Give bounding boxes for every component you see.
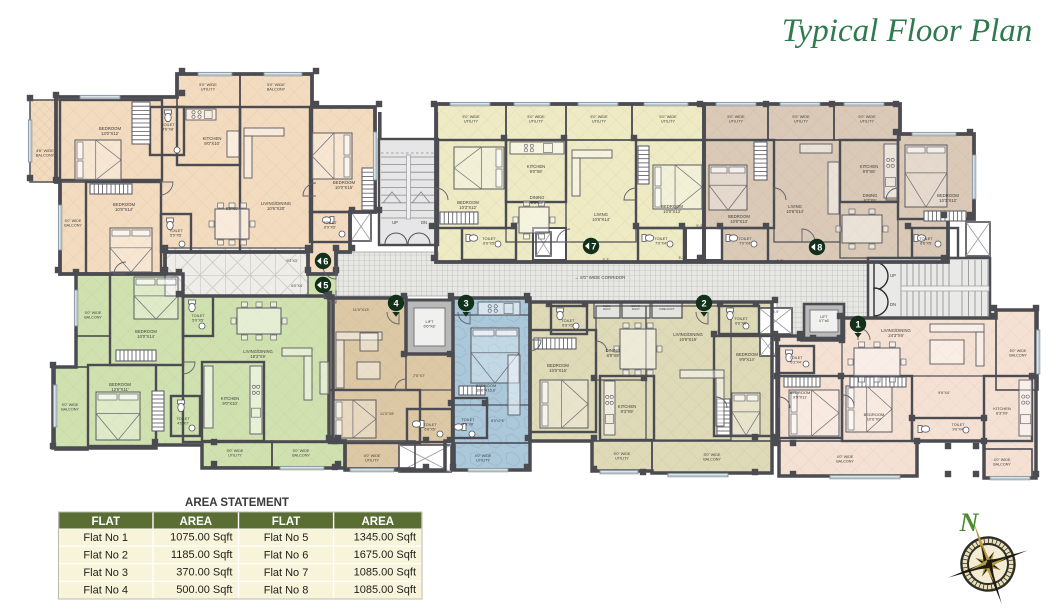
svg-text:Flat No 4: Flat No 4 bbox=[83, 585, 128, 597]
svg-text:BEDROOM10'6"X15.6': BEDROOM10'6"X15.6' bbox=[476, 383, 497, 393]
svg-text:BEDROOM10'0"X15': BEDROOM10'0"X15' bbox=[333, 180, 356, 190]
svg-text:BEDROOM10'0"X13': BEDROOM10'0"X13' bbox=[661, 204, 683, 214]
svg-text:AREA: AREA bbox=[362, 516, 395, 528]
svg-text:5'-3": 5'-3" bbox=[603, 258, 611, 262]
svg-text:BEDROOM12'0"X11': BEDROOM12'0"X11' bbox=[109, 382, 131, 392]
svg-text:TOILET6'3"X4': TOILET6'3"X4' bbox=[790, 356, 804, 364]
svg-text:BEDROOM10'0"X13': BEDROOM10'0"X13' bbox=[728, 214, 750, 224]
svg-text:9'3"X3': 9'3"X3' bbox=[286, 259, 298, 263]
svg-text:DN: DN bbox=[890, 302, 896, 307]
svg-text:1075.00 Sqft: 1075.00 Sqft bbox=[170, 531, 232, 543]
svg-text:BEDROOM10'0"X14': BEDROOM10'0"X14' bbox=[113, 202, 136, 212]
svg-text:Flat No 2: Flat No 2 bbox=[83, 550, 128, 562]
svg-text:UP: UP bbox=[890, 273, 896, 278]
svg-text:Flat No 6: Flat No 6 bbox=[264, 550, 309, 562]
svg-text:5'0" WIDEBALCONY: 5'0" WIDEBALCONY bbox=[703, 453, 721, 461]
svg-text:7: 7 bbox=[591, 241, 596, 251]
svg-text:5'0" WIDEUTILITY: 5'0" WIDEUTILITY bbox=[659, 115, 677, 123]
svg-text:TOILET6'9"X5': TOILET6'9"X5' bbox=[561, 319, 575, 327]
svg-text:Flat No 7: Flat No 7 bbox=[264, 567, 309, 579]
svg-text:TOILET5'5"X5': TOILET5'5"X5' bbox=[169, 228, 183, 237]
svg-text:TOILET6'6"X5': TOILET6'6"X5' bbox=[424, 423, 438, 431]
svg-text:11'9"X13': 11'9"X13' bbox=[353, 307, 370, 312]
svg-text:BEDROOM13'0"X12': BEDROOM13'0"X12' bbox=[99, 126, 122, 136]
svg-text:AREA STATEMENT: AREA STATEMENT bbox=[185, 497, 289, 509]
svg-text:4'0" WIDEUTILITY: 4'0" WIDEUTILITY bbox=[475, 454, 492, 462]
svg-text:500.00 Sqft: 500.00 Sqft bbox=[176, 584, 232, 596]
svg-text:COMM.DUCT: COMM.DUCT bbox=[631, 304, 641, 311]
svg-text:ELEC.DUCT: ELEC.DUCT bbox=[603, 304, 611, 311]
svg-text:TOILET4'6"X8': TOILET4'6"X8' bbox=[462, 418, 476, 426]
svg-text:5'0" WIDEUTILITY: 5'0" WIDEUTILITY bbox=[462, 115, 480, 123]
svg-text:TOILET6'6"X5': TOILET6'6"X5' bbox=[482, 237, 496, 245]
svg-text:KITCHEN9'0"X10': KITCHEN9'0"X10' bbox=[221, 396, 239, 406]
svg-text:1: 1 bbox=[855, 319, 860, 329]
svg-text:← 6'0" WIDE CORRIDOR: ← 6'0" WIDE CORRIDOR bbox=[575, 275, 626, 280]
svg-text:1185.00 Sqft: 1185.00 Sqft bbox=[171, 549, 233, 561]
svg-text:4: 4 bbox=[393, 298, 399, 308]
svg-text:BEDROOM10'6"X9': BEDROOM10'6"X9' bbox=[864, 412, 885, 422]
svg-text:6'0"x7'6": 6'0"x7'6" bbox=[491, 419, 505, 423]
svg-text:Flat No 1: Flat No 1 bbox=[83, 532, 128, 544]
svg-text:5'0" WIDEUTILITY: 5'0" WIDEUTILITY bbox=[858, 115, 876, 123]
svg-text:4'0" WIDEBALCONY: 4'0" WIDEBALCONY bbox=[836, 455, 854, 463]
svg-text:DINING8'9"X9': DINING8'9"X9' bbox=[606, 348, 621, 358]
svg-text:8'0"X9': 8'0"X9' bbox=[226, 206, 239, 211]
svg-text:UP: UP bbox=[392, 220, 398, 225]
svg-text:2: 2 bbox=[701, 298, 706, 308]
svg-text:LIVING10'6"X14': LIVING10'6"X14' bbox=[592, 212, 610, 222]
svg-text:5'0" WIDEUTILITY: 5'0" WIDEUTILITY bbox=[614, 452, 631, 460]
svg-text:TOILET7'0"X4': TOILET7'0"X4' bbox=[654, 237, 668, 245]
svg-text:TOILET6'6"X6': TOILET6'6"X6' bbox=[734, 317, 748, 325]
svg-text:TOILET5'0"X5': TOILET5'0"X5' bbox=[191, 314, 205, 322]
svg-text:KITCHEN9'0"X8': KITCHEN9'0"X8' bbox=[527, 164, 545, 174]
svg-text:5'0" WIDEBALCONY: 5'0" WIDEBALCONY bbox=[292, 449, 310, 457]
svg-text:Typical Floor Plan: Typical Floor Plan bbox=[782, 13, 1033, 49]
svg-text:KITCHEN8'3"X9': KITCHEN8'3"X9' bbox=[618, 404, 636, 414]
svg-text:DN: DN bbox=[421, 220, 427, 225]
svg-text:N: N bbox=[959, 508, 980, 537]
svg-text:KITCHEN9'0"X8': KITCHEN9'0"X8' bbox=[860, 164, 878, 174]
svg-text:TOILET4'6"X8': TOILET4'6"X8' bbox=[161, 122, 175, 131]
svg-text:5'0" WIDEUTILITY: 5'0" WIDEUTILITY bbox=[792, 115, 810, 123]
svg-text:5'-3": 5'-3" bbox=[696, 224, 704, 228]
svg-text:8: 8 bbox=[817, 242, 822, 252]
svg-text:TOILET7'0"X4': TOILET7'0"X4' bbox=[738, 237, 752, 245]
svg-text:5'-9": 5'-9" bbox=[773, 310, 781, 314]
svg-text:KITCHEN9'0"X10': KITCHEN9'0"X10' bbox=[203, 136, 222, 146]
svg-text:5'-3": 5'-3" bbox=[777, 259, 785, 263]
svg-text:BEDROOM10'0"X16': BEDROOM10'0"X16' bbox=[547, 363, 569, 373]
svg-text:BEDROOM10'0"X14': BEDROOM10'0"X14' bbox=[135, 329, 157, 339]
svg-text:LIVING10'6"X14': LIVING10'6"X14' bbox=[786, 204, 804, 214]
svg-text:TOILET6'9"X5': TOILET6'9"X5' bbox=[323, 220, 337, 229]
svg-text:5'0" WIDEBALCONY: 5'0" WIDEBALCONY bbox=[64, 219, 82, 227]
svg-text:1085.00 Sqft: 1085.00 Sqft bbox=[354, 567, 416, 579]
svg-text:4'6" WIDEBALCONY: 4'6" WIDEBALCONY bbox=[36, 148, 55, 157]
svg-text:11'3"X9': 11'3"X9' bbox=[380, 411, 394, 416]
svg-text:1345.00 Sqft: 1345.00 Sqft bbox=[354, 531, 416, 543]
svg-text:FLAT: FLAT bbox=[91, 516, 120, 528]
svg-text:4'0" WIDEBALCONY: 4'0" WIDEBALCONY bbox=[993, 458, 1011, 466]
svg-text:5'0" WIDEUTILITY: 5'0" WIDEUTILITY bbox=[527, 115, 545, 123]
svg-text:5'0" WIDEUTILITY: 5'0" WIDEUTILITY bbox=[590, 115, 608, 123]
svg-text:1085.00 Sqft: 1085.00 Sqft bbox=[354, 584, 416, 596]
svg-text:3: 3 bbox=[463, 298, 468, 308]
svg-text:TOILET9'6"X4': TOILET9'6"X4' bbox=[952, 423, 966, 431]
svg-text:TOILET4'6"X7': TOILET4'6"X7' bbox=[176, 417, 190, 425]
svg-text:TOILET6'6"X5': TOILET6'6"X5' bbox=[919, 237, 933, 245]
svg-text:5'0" WIDEUTILITY: 5'0" WIDEUTILITY bbox=[227, 449, 244, 457]
svg-text:6'0"X4': 6'0"X4' bbox=[291, 284, 303, 288]
svg-text:5'0" WIDEUTILITY: 5'0" WIDEUTILITY bbox=[199, 82, 217, 91]
svg-text:4'0" WIDEUTILITY: 4'0" WIDEUTILITY bbox=[364, 454, 381, 462]
svg-text:FLAT: FLAT bbox=[272, 516, 301, 528]
svg-text:7'0"X7': 7'0"X7' bbox=[413, 373, 426, 378]
svg-text:5'0" WIDEUTILITY: 5'0" WIDEUTILITY bbox=[727, 115, 745, 123]
svg-text:6: 6 bbox=[323, 256, 328, 266]
svg-text:AREA: AREA bbox=[179, 516, 212, 528]
svg-text:5'0" WIDEBALCONY: 5'0" WIDEBALCONY bbox=[61, 403, 79, 411]
svg-text:5'0" WIDEBALCONY: 5'0" WIDEBALCONY bbox=[1009, 349, 1027, 357]
svg-text:BEDROOM10'3"X12': BEDROOM10'3"X12' bbox=[937, 193, 959, 203]
svg-text:BEDROOM10'3"X12': BEDROOM10'3"X12' bbox=[457, 200, 479, 210]
svg-text:5'0" WIDEBALCONY: 5'0" WIDEBALCONY bbox=[84, 311, 102, 319]
svg-text:5: 5 bbox=[323, 280, 328, 290]
svg-text:DINING9'3"X9': DINING9'3"X9' bbox=[863, 193, 878, 203]
svg-text:5'0" WIDEBALCONY: 5'0" WIDEBALCONY bbox=[267, 82, 286, 91]
svg-text:DINING9'3"X9': DINING9'3"X9' bbox=[530, 195, 545, 205]
svg-text:9'6"X4': 9'6"X4' bbox=[938, 391, 950, 395]
svg-text:Flat No 5: Flat No 5 bbox=[264, 532, 309, 544]
svg-text:Flat No 8: Flat No 8 bbox=[264, 585, 309, 597]
svg-text:5'-3": 5'-3" bbox=[679, 256, 687, 260]
svg-text:FIRE.DUCT: FIRE.DUCT bbox=[660, 307, 675, 311]
svg-text:1675.00 Sqft: 1675.00 Sqft bbox=[354, 549, 416, 561]
svg-text:Flat No 3: Flat No 3 bbox=[83, 567, 128, 579]
svg-text:370.00 Sqft: 370.00 Sqft bbox=[176, 567, 232, 579]
